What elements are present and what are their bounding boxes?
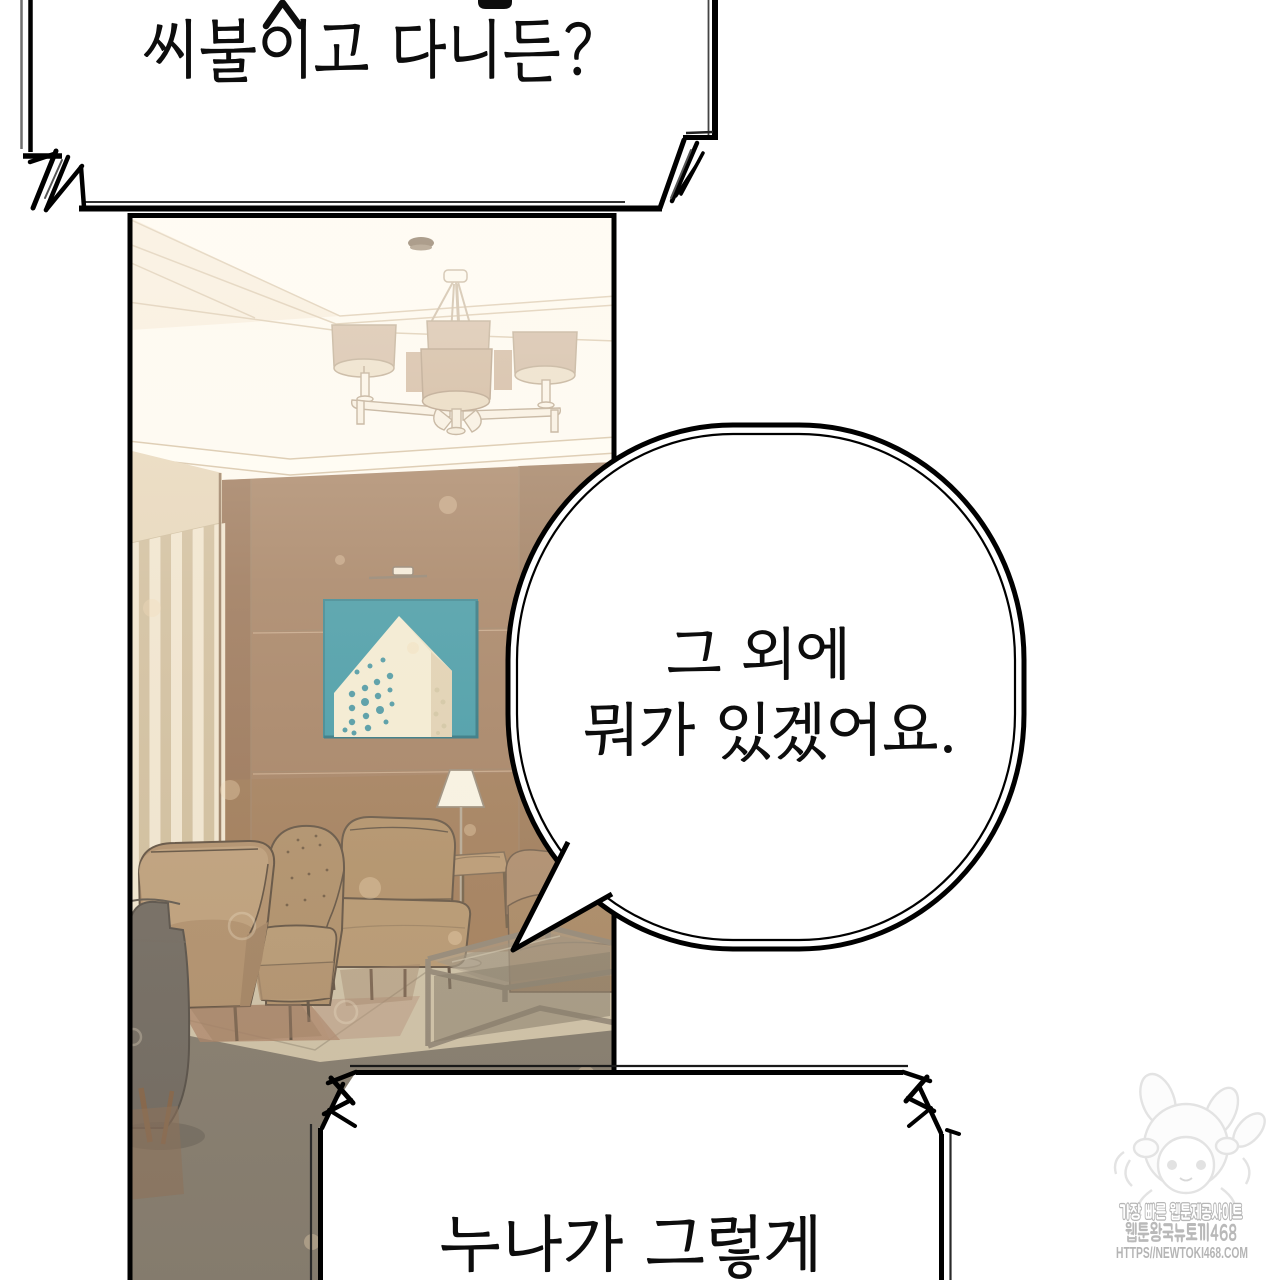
svg-text:HTTPS//NEWTOKI468.COM: HTTPS//NEWTOKI468.COM (1116, 1245, 1248, 1262)
